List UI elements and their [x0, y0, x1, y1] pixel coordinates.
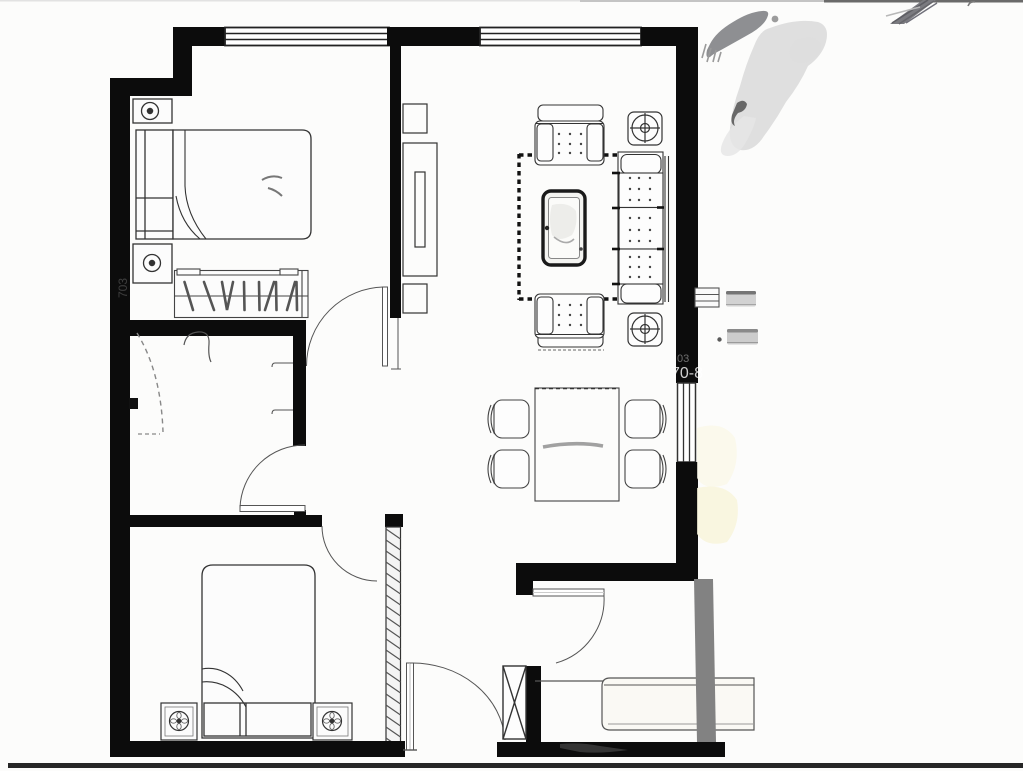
svg-text:03: 03	[677, 353, 689, 365]
svg-text:70-8: 70-8	[671, 365, 703, 382]
svg-text:703: 703	[116, 278, 130, 298]
